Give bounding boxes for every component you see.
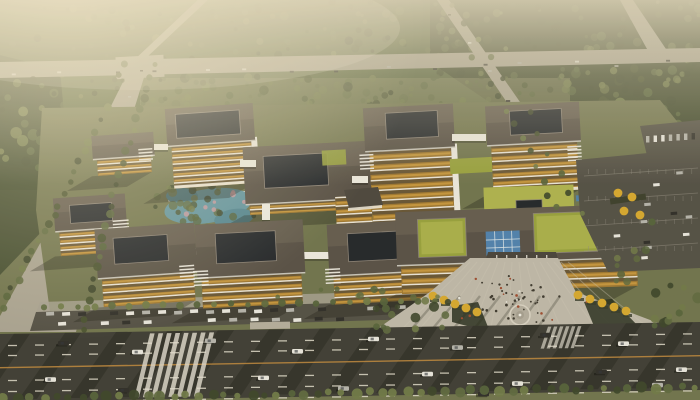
architectural-rendering-canvas <box>0 0 700 400</box>
warm-color-cast <box>0 0 700 400</box>
aerial-campus-rendering <box>0 0 700 400</box>
atmosphere-haze-layer <box>0 0 700 400</box>
